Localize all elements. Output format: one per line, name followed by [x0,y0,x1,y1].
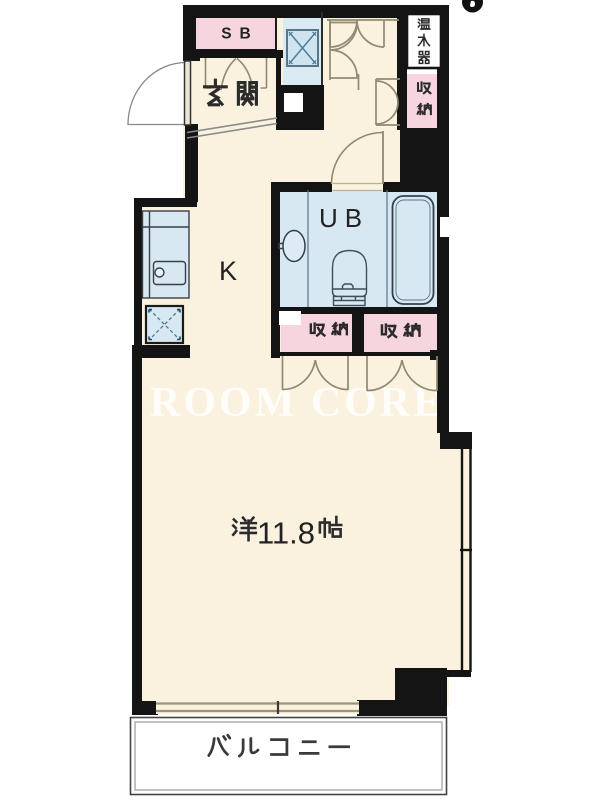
svg-text:11.8: 11.8 [257,516,315,551]
svg-text:UB: UB [319,203,369,233]
svg-text:K: K [219,256,237,286]
svg-text:SB: SB [221,26,259,43]
